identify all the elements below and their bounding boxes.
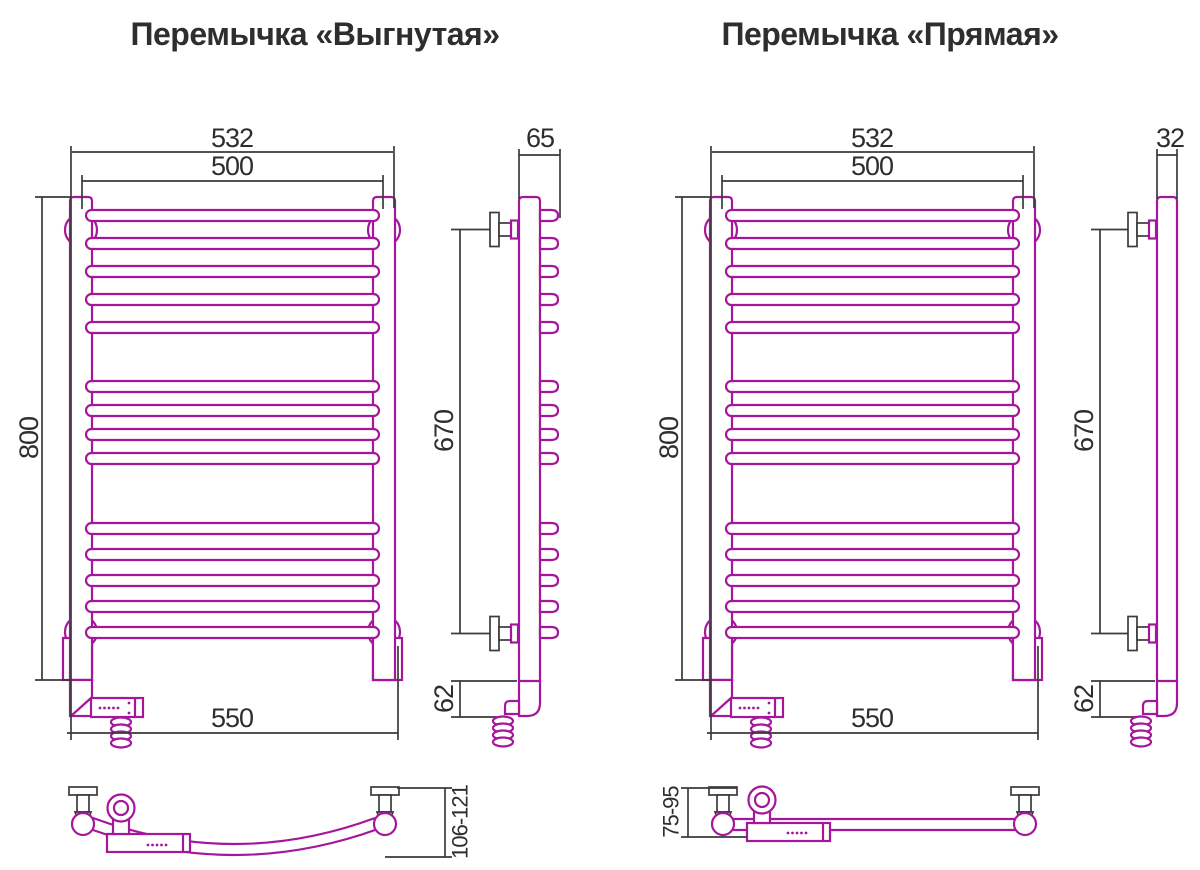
right-front-view: 532 500 800 550 bbox=[654, 123, 1042, 748]
post-profile bbox=[1157, 197, 1177, 716]
post-profile bbox=[519, 197, 540, 716]
post-section bbox=[72, 813, 94, 835]
power-cable-coil bbox=[1131, 717, 1151, 747]
dim-bottom-width: 550 bbox=[211, 703, 253, 733]
dim-wall-distance: 106-121 bbox=[448, 784, 473, 859]
post-section bbox=[1014, 813, 1036, 835]
left-foot-lower bbox=[710, 680, 732, 716]
left-drawing-title: Перемычка «Выгнутая» bbox=[130, 16, 499, 52]
dim-depth: 65 bbox=[526, 123, 554, 153]
dim-bottom-offset: 62 bbox=[1069, 685, 1099, 713]
rail-ends bbox=[540, 210, 558, 638]
cable-gland bbox=[108, 795, 135, 822]
right-side-view: 32 670 62 bbox=[1069, 123, 1184, 747]
towel-warmer-drawing: Перемычка «Выгнутая» bbox=[0, 0, 1200, 870]
dim-wall-distance: 75-95 bbox=[659, 786, 684, 838]
technical-drawing-sheet: Перемычка «Выгнутая» bbox=[0, 0, 1200, 870]
dim-width-inner: 500 bbox=[851, 151, 893, 181]
post-section bbox=[374, 813, 396, 835]
power-cable-coil bbox=[493, 717, 513, 747]
right-bottom-view: 75-95 bbox=[659, 786, 1040, 841]
left-foot-lower bbox=[70, 680, 92, 716]
dim-bottom-width: 550 bbox=[851, 703, 893, 733]
left-front-view: 532 500 800 550 bbox=[14, 123, 402, 748]
left-side-view: 65 670 62 bbox=[429, 123, 560, 747]
dim-bottom-offset: 62 bbox=[429, 685, 459, 713]
cable-elbow bbox=[505, 701, 519, 714]
dim-height: 800 bbox=[14, 417, 44, 459]
post-section bbox=[712, 813, 734, 835]
right-drawing-title: Перемычка «Прямая» bbox=[721, 16, 1058, 52]
dim-depth: 32 bbox=[1156, 123, 1184, 153]
dim-height: 800 bbox=[654, 417, 684, 459]
dim-width-inner: 500 bbox=[211, 151, 253, 181]
rails bbox=[726, 210, 1019, 638]
dim-width-outer: 532 bbox=[211, 123, 253, 153]
electric-box-top bbox=[107, 834, 190, 852]
dim-bracket-span: 670 bbox=[429, 410, 459, 452]
cable-elbow bbox=[1143, 701, 1157, 714]
cable-gland bbox=[749, 787, 776, 814]
dim-bracket-span: 670 bbox=[1069, 410, 1099, 452]
dim-width-outer: 532 bbox=[851, 123, 893, 153]
left-bottom-view: 106-121 bbox=[69, 784, 473, 859]
rails bbox=[86, 210, 379, 638]
